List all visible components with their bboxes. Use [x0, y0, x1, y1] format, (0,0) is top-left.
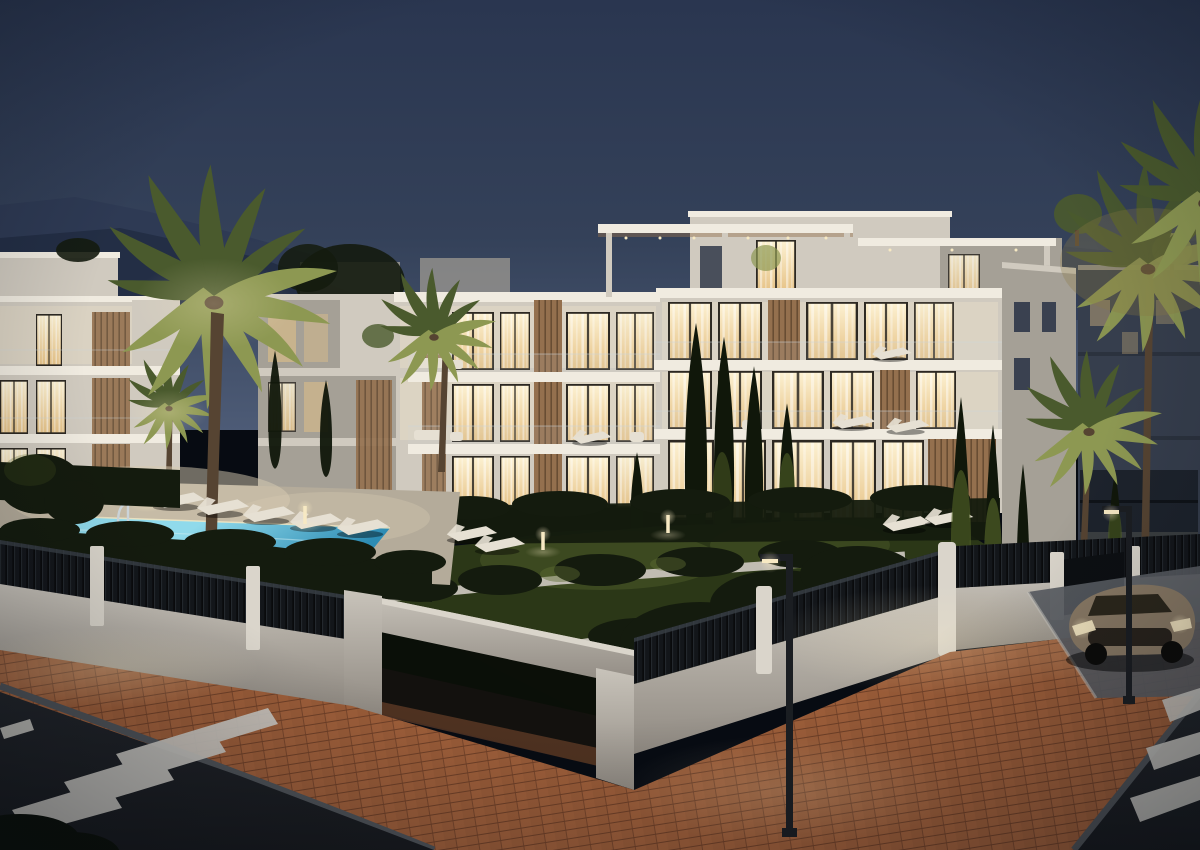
- dusk-render-canvas: [0, 0, 1200, 850]
- architectural-render: [0, 0, 1200, 850]
- vignette-overlay: [0, 0, 1200, 850]
